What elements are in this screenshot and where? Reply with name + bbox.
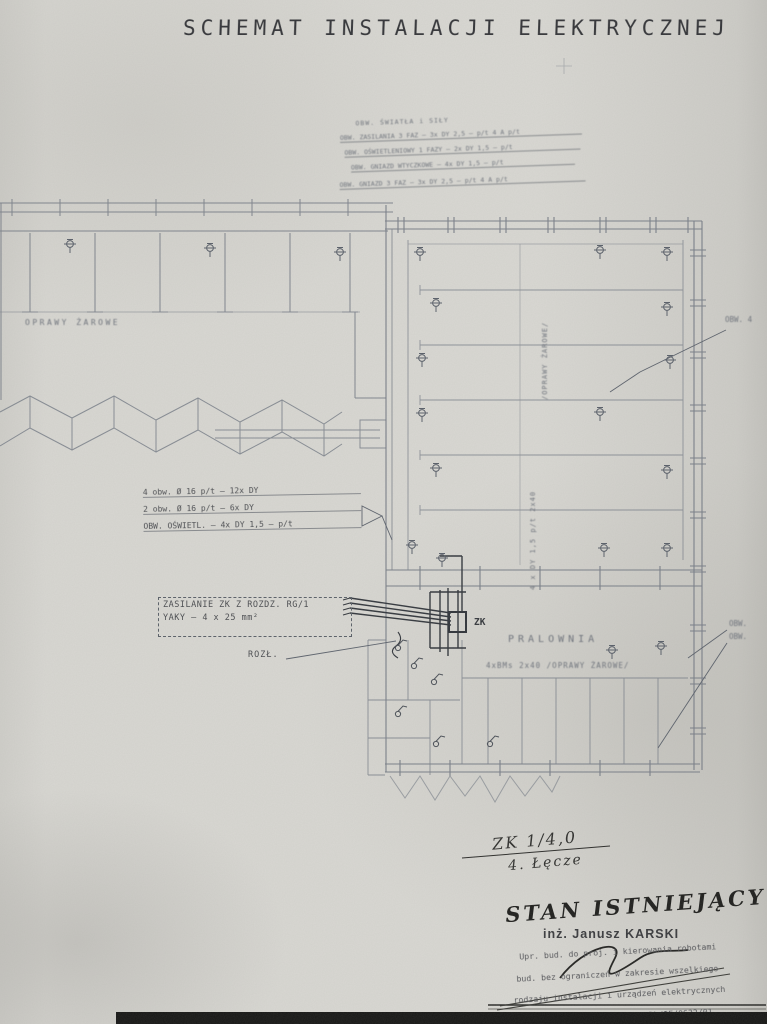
lamp-icon	[430, 299, 442, 313]
zk-supply-line1: ZASILANIE ZK Z ROZDZ. RG/1	[163, 600, 347, 610]
laundry-room-label: PRALOWNIA	[508, 634, 598, 645]
registration-cross	[556, 58, 572, 74]
switch-icon	[395, 640, 407, 651]
supply-wire-bundle	[343, 556, 466, 658]
switch-icon	[433, 736, 445, 747]
stamp-line: bud. bez ograniczeń w zakresie wszelkieg…	[516, 962, 728, 984]
lamp-icon	[598, 544, 610, 558]
lamp-icon	[64, 240, 76, 254]
annex-rooms	[368, 640, 460, 775]
zk-supply-note: ZASILANIE ZK Z ROZDZ. RG/1 YAKY – 4 x 25…	[158, 597, 352, 637]
laundry-partitions	[462, 640, 688, 764]
disconnector-label: ROZŁ.	[248, 650, 279, 660]
lamp-icon	[334, 248, 346, 262]
lamp-icon	[661, 303, 673, 317]
scan-edge-bar	[116, 1012, 767, 1024]
lamp-icon	[655, 642, 667, 656]
legend-line: OBW. OŚWIETLENIOWY 1 FAZY – 2x DY 1,5 – …	[344, 141, 580, 158]
lamp-icon	[661, 466, 673, 480]
legend-block: OBW. ŚWIATŁA i SIŁY OBW. ZASILANIA 3 FAZ…	[329, 112, 576, 165]
leader-lines	[286, 330, 727, 748]
scallop-edge	[390, 776, 560, 802]
upper-hall-partitions	[408, 240, 683, 570]
zigzag-boundary	[0, 396, 386, 456]
lamp-icon	[661, 544, 673, 558]
engineer-name: inż. Janusz KARSKI	[543, 927, 679, 941]
lamp-icon	[414, 248, 426, 262]
vertical-fixtures-label: /OPRAWY ŻAROWE/	[541, 322, 549, 400]
drawing-title: SCHEMAT INSTALACJI ELEKTRYCZNEJ	[183, 16, 731, 40]
switch-symbols	[395, 640, 499, 747]
vertical-cable-label: 4 x DY 1,5 p/t 2x40	[529, 491, 537, 590]
lamp-icon	[661, 248, 673, 262]
scanned-drawing-page: SCHEMAT INSTALACJI ELEKTRYCZNEJ OBW. ŚWI…	[0, 0, 767, 1024]
zk-supply-line2: YAKY – 4 x 25 mm²	[163, 613, 347, 623]
lamp-icon	[594, 246, 606, 260]
switch-icon	[487, 736, 499, 747]
circuit-callout-mid2: OBW.	[729, 632, 747, 641]
lamp-icon	[204, 244, 216, 258]
feeder-line: 2 obw. Ø 16 p/t – 6x DY	[143, 501, 361, 515]
lamp-icon	[594, 408, 606, 422]
lamp-icon	[416, 354, 428, 368]
legend-line: OBW. ZASILANIA 3 FAZ – 3x DY 2,5 – p/t 4…	[340, 126, 582, 143]
lamp-icon	[606, 646, 618, 660]
switch-icon	[411, 658, 423, 669]
left-wing-fixtures-label: OPRAWY ŻAROWE	[25, 318, 120, 327]
circuit-callout-mid1: OBW.	[729, 619, 747, 628]
laundry-room-sublabel: 4xBMs 2x40 /OPRAWY ŻAROWE/	[486, 661, 629, 670]
left-wing-walls	[0, 199, 393, 400]
lamp-icon	[430, 464, 442, 478]
zk-label: ZK	[474, 617, 485, 628]
switch-icon	[395, 706, 407, 717]
switch-icon	[431, 674, 443, 685]
feeder-annotation: 4 obw. Ø 16 p/t – 12x DY 2 obw. Ø 16 p/t…	[143, 484, 361, 518]
lamp-icon	[416, 409, 428, 423]
circuit-callout-top: OBW. 4	[725, 315, 752, 324]
